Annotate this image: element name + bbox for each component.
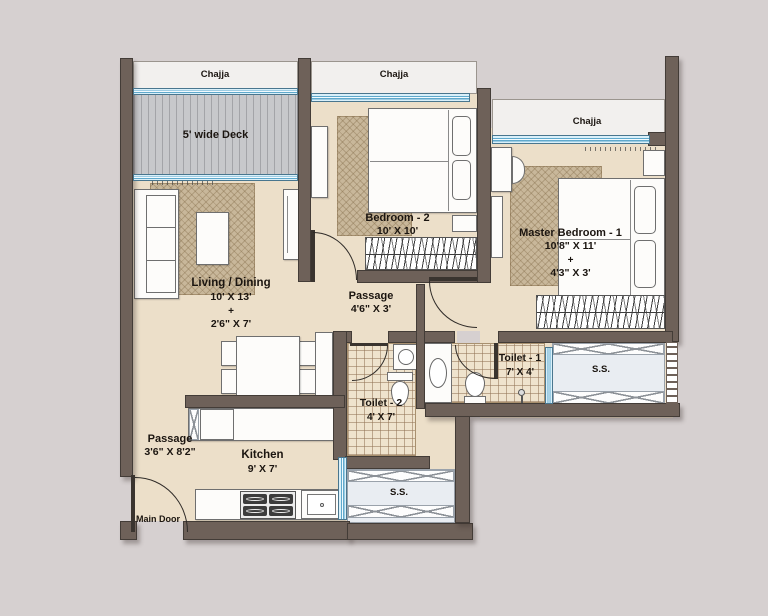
shower-symbol <box>518 389 525 396</box>
room-name: Living / Dining <box>160 276 302 291</box>
wall <box>477 88 491 283</box>
dining-chair <box>299 369 316 394</box>
tv-panel <box>287 196 288 253</box>
toilet1-label: Toilet - 1 7' X 4' <box>464 352 576 379</box>
shaft-wash-basin <box>429 358 447 388</box>
wall <box>648 132 666 146</box>
room-name: Master Bedroom - 1 <box>504 226 637 240</box>
passage-middle-label: Passage 4'6" X 3' <box>317 289 425 317</box>
service-slab-bottom-label: S.S. <box>369 487 429 499</box>
pillow <box>452 116 471 156</box>
bedroom2-bed-split-line <box>370 161 448 162</box>
kitchen-tall-cabinet <box>315 332 333 396</box>
master-wardrobe <box>536 295 665 329</box>
stove <box>240 491 296 519</box>
pillow <box>634 186 656 234</box>
coffee-table <box>196 212 229 265</box>
deck-railing-window <box>133 88 298 95</box>
deck-label: 5' wide Deck <box>148 128 283 142</box>
room-name: Bedroom - 2 <box>332 211 463 225</box>
room-dim-plus: + <box>160 305 302 318</box>
bedroom2-window <box>311 93 470 102</box>
chajja-right-label: Chajja <box>537 116 637 128</box>
kitchen-window <box>338 457 347 520</box>
sink-drain <box>320 503 324 507</box>
wall <box>498 331 673 343</box>
sofa-cushion <box>147 228 175 260</box>
wall <box>347 523 473 540</box>
wall <box>665 56 679 342</box>
wall <box>120 58 133 477</box>
burner <box>243 494 267 504</box>
sill-hatch-living <box>152 181 214 185</box>
wall <box>455 416 470 523</box>
room-dim: 10' X 13' <box>160 291 302 305</box>
main-door-label: Main Door <box>136 514 206 526</box>
master-bedroom-label: Master Bedroom - 1 10'8" X 11' + 4'3" X … <box>504 226 637 281</box>
tv-unit <box>283 189 299 260</box>
master-wall-cabinet <box>491 196 503 258</box>
bedroom2-label: Bedroom - 2 10' X 10' <box>332 211 463 239</box>
sofa-cushion <box>147 196 175 228</box>
floor-plan: Chajja Chajja Chajja 5' wide Deck Living… <box>0 0 768 616</box>
wall <box>298 58 311 282</box>
service-slab-bottom-hatch-top <box>348 470 454 482</box>
room-dim: 7' X 4' <box>464 366 576 379</box>
room-name: Toilet - 1 <box>464 352 576 366</box>
room-dim: 3'6" X 8'2" <box>108 446 232 460</box>
chajja-left-label: Chajja <box>165 69 265 81</box>
master-window <box>492 135 650 144</box>
burner <box>243 506 267 516</box>
room-dim: 4'3" X 3' <box>504 267 637 281</box>
bedroom2-bed-head-line <box>448 110 449 211</box>
room-name: Passage <box>108 432 232 446</box>
burner <box>269 506 293 516</box>
room-dim-plus: + <box>504 254 637 267</box>
room-dim: 10' X 10' <box>332 225 463 239</box>
wall <box>425 403 680 417</box>
louver-vent <box>666 342 678 405</box>
wall <box>185 395 345 408</box>
toilet2-wc-tank <box>387 372 413 381</box>
burner <box>269 494 293 504</box>
living-dining-label: Living / Dining 10' X 13' + 2'6" X 7' <box>160 276 302 331</box>
room-name: Toilet - 2 <box>327 397 435 411</box>
bedroom2-side-cabinet <box>311 126 328 198</box>
pillow <box>634 240 656 288</box>
wall <box>345 456 430 469</box>
chajja-middle-label: Chajja <box>344 69 444 81</box>
bedroom2-wardrobe <box>365 237 477 270</box>
toilet2-basin <box>398 349 414 365</box>
room-name: Passage <box>317 289 425 303</box>
room-dim: 10'8" X 11' <box>504 240 637 254</box>
room-dim: 4'6" X 3' <box>317 303 425 317</box>
passage-entry-label: Passage 3'6" X 8'2" <box>108 432 232 460</box>
dining-table <box>236 336 300 398</box>
service-slab-bottom-hatch-bottom <box>348 505 454 518</box>
living-deck-window <box>133 174 298 181</box>
toilet2-label: Toilet - 2 4' X 7' <box>327 397 435 424</box>
dining-chair <box>299 341 316 366</box>
room-dim: 9' X 7' <box>200 463 325 477</box>
wall <box>183 521 350 540</box>
master-dresser <box>491 147 512 192</box>
room-dim: 2'6" X 7' <box>160 318 302 332</box>
master-bedside-table <box>643 150 665 176</box>
pillow <box>452 160 471 200</box>
service-slab-right-label: S.S. <box>571 364 631 376</box>
room-dim: 4' X 7' <box>327 411 435 424</box>
